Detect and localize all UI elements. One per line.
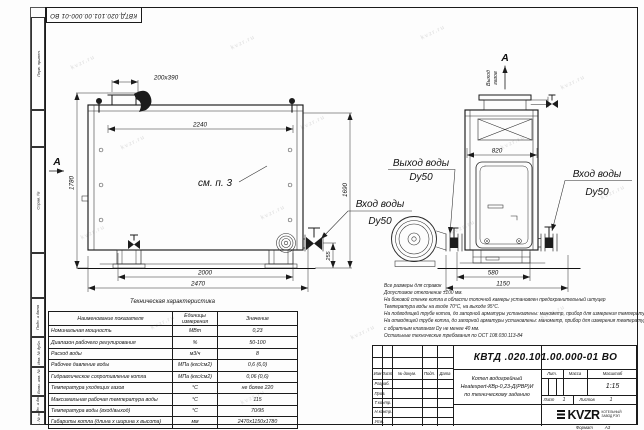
grid-line — [548, 378, 549, 395]
table-row: Номинальная мощностьМВт0,23 — [49, 326, 298, 337]
row-name: Температура уходящих газов — [49, 382, 173, 393]
dim-height-total: 1780 — [69, 176, 76, 191]
role-tkontr: Т.контр. — [373, 398, 392, 407]
table-row: Температура воды (вход/выход)°С70/95 — [49, 405, 298, 416]
grid-line — [392, 346, 393, 426]
tech-table-header: Наименование показателя Единицы измерени… — [49, 312, 298, 326]
inlet-valve-front — [303, 228, 323, 251]
boiler-door — [476, 162, 532, 248]
sheet-value: 1 — [557, 395, 571, 404]
dim-top-width: 2240 — [192, 122, 208, 129]
dim-total-width: 2470 — [190, 281, 206, 288]
grid-line — [437, 346, 438, 426]
note-line: На боковой стенке котла в области топочн… — [384, 297, 628, 304]
water-inlet-front-dn: Dy50 — [368, 216, 392, 227]
dim-valve-height: 255 — [326, 250, 332, 261]
role-nkontr: Н.контр. — [373, 407, 392, 416]
col-list: Лист — [382, 368, 392, 379]
col-header-name: Наименование показателя — [49, 312, 173, 326]
row-value: 70/95 — [218, 405, 298, 416]
product-name-line1: Котел водогрейный — [472, 375, 522, 383]
water-inlet-side-label: Вход воды — [573, 169, 622, 180]
role-utv: Утв. — [373, 417, 392, 426]
format-value: А3 — [605, 425, 610, 430]
row-unit: мм — [173, 417, 218, 428]
row-value: 115 — [218, 394, 298, 405]
grid-line — [422, 346, 423, 426]
tech-table-title: Техническая характеристика — [48, 299, 297, 305]
view-a-label-top: А — [500, 52, 509, 64]
product-name: Котел водогрейный Heatexpert-КВр-0,23-Д(… — [453, 369, 541, 404]
view-a-label-left: А — [52, 156, 61, 168]
kvzr-logo-text: KVZR — [567, 408, 599, 422]
row-unit: МПа (кгс/см2) — [173, 360, 218, 371]
row-value: 0,23 — [218, 326, 298, 337]
dim-height-right: 1690 — [342, 183, 349, 198]
col-header-unit-line2: измерения — [182, 319, 208, 325]
product-name-line2: Heatexpert-КВр-0,23-Д(РВР)И — [461, 383, 534, 391]
water-outlet-dn: Dy50 — [409, 172, 433, 183]
dimensions-side — [446, 148, 568, 292]
row-name: Рабочее давление воды — [49, 360, 173, 371]
dim-chimney-size: 200х390 — [153, 75, 179, 82]
table-row: Гидравлическое сопротивление котлаМПа (к… — [49, 371, 298, 382]
company-name: КОТЕЛЬНЫЙ ЗАВОД РЭП — [602, 411, 622, 418]
logo-bars-icon — [557, 410, 565, 420]
company-logo: KVZR КОТЕЛЬНЫЙ ЗАВОД РЭП — [541, 404, 638, 426]
table-row: Рабочее давление водыМПа (кгс/см2)0,6 (6… — [49, 360, 298, 371]
scale-value: 1:15 — [587, 378, 638, 395]
scale-label: Масштаб — [587, 369, 638, 378]
table-row: Диапазон рабочего регулирования%50-100 — [49, 337, 298, 348]
row-name: Гидравлическое сопротивление котла — [49, 371, 173, 382]
row-unit: м3/ч — [173, 348, 218, 359]
outlet-valve-side — [446, 228, 462, 251]
see-note-label: см. п. 3 — [198, 178, 232, 189]
flue-stub — [108, 91, 151, 112]
table-row: Габариты котла (длина х ширина х высота)… — [49, 417, 298, 428]
note-line: На отводящей трубе котла, до запорной ар… — [384, 318, 628, 325]
row-value: 50-100 — [218, 337, 298, 348]
table-row: Температура уходящих газов°Сне более 220 — [49, 382, 298, 393]
row-unit: °С — [173, 394, 218, 405]
row-value: 2470х1150х1780 — [218, 417, 298, 428]
gas-outlet-label-2: газов — [493, 71, 499, 85]
row-unit: °С — [173, 382, 218, 393]
row-name: Номинальная мощность — [49, 326, 173, 337]
sheets-label: Листов — [575, 395, 599, 404]
inlet-valve-side — [538, 227, 557, 251]
side-chimney — [479, 95, 558, 110]
grid-line — [573, 395, 574, 404]
row-unit: МПа (кгс/см2) — [173, 371, 218, 382]
note-line: Остальные технические требования по ОСТ … — [384, 333, 628, 340]
row-value: 8 — [218, 348, 298, 359]
note-line: с обратным клапаном Dу не менее 40 мм. — [384, 326, 628, 333]
water-outlet-label: Выход воды — [393, 158, 450, 169]
row-unit: °С — [173, 405, 218, 416]
role-razrab: Разраб. — [373, 379, 392, 388]
role-prov: Пров. — [373, 388, 392, 397]
gas-outlet-label-1: Выход — [486, 70, 492, 86]
dim-bottom-width: 2000 — [197, 270, 213, 277]
row-name: Габариты котла (длина х ширина х высота) — [49, 417, 173, 428]
format-label: Формат — [576, 425, 593, 430]
company-name-line2: ЗАВОД РЭП — [602, 415, 622, 419]
dim-side-top: 820 — [492, 148, 503, 155]
water-inlet-front-label: Вход воды — [356, 199, 405, 210]
panel-screws — [99, 148, 292, 222]
row-name: Расход воды — [49, 348, 173, 359]
tech-table: Наименование показателя Единицы измерени… — [48, 311, 298, 429]
notes-block: Все размеры для справок Допустимое откло… — [384, 283, 628, 340]
col-header-unit: Единицы измерения — [173, 312, 218, 326]
doc-number: КВТД .020.101.00.000-01 ВО — [453, 346, 638, 369]
grid-line — [373, 357, 453, 358]
row-unit: % — [173, 337, 218, 348]
row-value: не более 220 — [218, 382, 298, 393]
lit-label: Лит. — [541, 369, 563, 378]
dim-side-base: 580 — [488, 270, 499, 277]
water-inlet-side-dn: Dy50 — [585, 187, 609, 198]
row-name: Диапазон рабочего регулирования — [49, 337, 173, 348]
row-name: Максимальная рабочая температура воды — [49, 394, 173, 405]
sheets-value: 1 — [601, 395, 621, 404]
col-izm: Изм — [373, 368, 382, 379]
draft-fan — [392, 217, 447, 267]
drain-valve — [128, 235, 140, 249]
row-unit: МВт — [173, 326, 218, 337]
leader-lines — [49, 166, 632, 239]
col-header-value: Значение — [218, 312, 298, 326]
table-row: Максимальная рабочая температура воды°С1… — [49, 394, 298, 405]
row-value: 0,06 (0,6) — [218, 371, 298, 382]
drawing-sheet: kvzr.ru kvzr.ru kvzr.ru kvzr.ru kvzr.ru … — [0, 0, 644, 430]
sheet-label: Лист — [541, 395, 557, 404]
grid-line — [556, 378, 557, 395]
row-value: 0,6 (6,0) — [218, 360, 298, 371]
row-name: Температура воды (вход/выход) — [49, 405, 173, 416]
product-name-line3: по техническому заданию — [464, 391, 529, 399]
col-sign: Подп. — [422, 368, 437, 379]
col-ndoc: № докум. — [392, 368, 422, 379]
table-row: Расход водым3/ч8 — [49, 348, 298, 359]
mass-label: Масса — [563, 369, 587, 378]
col-date: Дата — [437, 368, 453, 379]
note-line: Все размеры для справок — [384, 283, 628, 290]
title-block: КВТД .020.101.00.000-01 ВО Изм Лист № до… — [372, 345, 637, 425]
format-note: Формат А3 — [548, 425, 638, 430]
